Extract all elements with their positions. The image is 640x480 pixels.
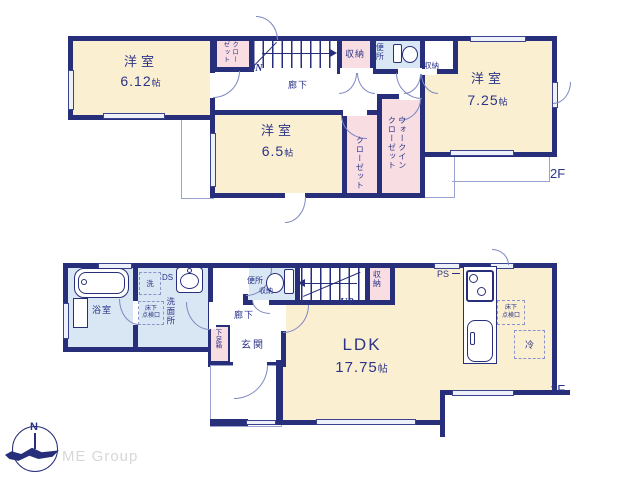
porch-wall [210,419,248,426]
ldk-size: 17.75帖 [335,359,389,376]
ldk-name: LDK [342,335,381,355]
size-unit: 帖 [499,97,509,107]
wic-label-col: クローゼット [387,116,395,170]
size-unit: 帖 [152,78,162,88]
stairs-1f-arrow-head [298,279,305,287]
refrigerator-space: 冷 [514,330,545,359]
hatch-label: 床下点検口 [502,305,520,319]
size-number: 17.75 [335,359,378,376]
floor-hatch-ldk: 床下点検口 [497,300,525,325]
bathtub-drain [81,279,87,285]
size-number: 6.5 [262,143,284,159]
toilet-tank-icon [284,269,294,294]
window [452,390,514,396]
toilet-tank-icon [393,44,402,63]
closet-label-col: クロー [230,41,237,64]
window-arc-bedroom-725 [553,82,571,104]
floor-label-1f: 1F [550,383,565,398]
porch-ldk-wall [276,360,283,425]
closet-top-label: ゼット クロー [221,41,237,64]
window [246,420,276,425]
room-name: 洋室 [261,124,295,139]
window [316,419,416,425]
stairs-direction-label: UP [340,297,353,309]
laundry-space: 洗 [139,272,161,295]
toilet-label: 便所 [247,276,263,285]
toilet-bowl-icon [402,46,418,63]
window-arc-kitchen [492,249,509,265]
walk-in-closet-label: クローゼット ウォークイン [387,116,406,170]
pipe-space-label: PS [437,269,449,279]
company-name: ME Group [62,448,138,465]
bathroom-label: 浴室 [92,305,112,315]
shoe-box-label: 下足箱 [213,329,220,349]
laundry-label: 洗 [146,278,154,289]
duct-space-label: DS [162,273,173,282]
stairs-1f-arrow-line [305,283,357,284]
floor-hatch-washroom: 床下点検口 [138,301,164,325]
room-name: 洋室 [471,72,505,87]
room-name: 洋室 [124,55,158,70]
stairs-direction-label: DN [248,63,262,75]
compass-north-label: N [30,421,38,434]
size-number: 7.25 [467,92,498,108]
door-arc-stairs-top [256,16,278,40]
size-number: 6.12 [120,73,151,89]
closet-label-col: ゼット [221,41,228,64]
window [450,150,514,156]
room-size: 6.12帖 [120,73,161,89]
toilet-label: 便所 [375,43,383,61]
stove-burner [477,287,486,296]
hatch-label: 床下点検口 [142,306,160,320]
washbasin-tap [187,268,192,273]
hallway-label: 廊下 [234,310,254,320]
closet-mid-label: クローゼット [355,136,363,190]
stairs-2f-arrow-line [262,53,330,54]
stove-burner [469,274,478,283]
balcony-2f-right-deep [421,150,455,198]
washroom-label: 洗面所 [166,297,175,326]
stairs-2f-arrow-head [330,49,337,57]
room-size: 6.5帖 [262,143,294,159]
floor-plan-page: 洋室 6.12帖 ゼット クロー DN 廊下 収納 便所 収納 洋室 7.25帖… [0,0,640,480]
floor-label-2f: 2F [550,167,565,182]
entrance-label: 玄関 [241,340,265,352]
compass-needle [34,433,36,449]
refrigerator-label: 冷 [525,338,534,351]
door-gap [209,302,216,329]
bath-counter [73,298,88,328]
storage-label: 収納 [372,270,380,288]
size-unit: 帖 [284,148,294,158]
window [63,303,69,339]
room-size: 7.25帖 [467,92,508,108]
door-arc-balcony [285,197,306,223]
window [470,36,526,42]
ps-tick [452,273,460,274]
hallway-label: 廊下 [288,80,308,90]
storage-label: 収納 [424,62,439,71]
window [103,113,165,119]
washbasin-bowl [180,273,199,289]
wic-label-col: ウォークイン [397,116,405,170]
window [210,133,216,187]
storage-label: 収納 [259,288,273,296]
window [68,70,74,110]
sink-faucet [470,332,475,345]
storage-label: 収納 [345,49,365,59]
size-unit: 帖 [378,364,389,375]
